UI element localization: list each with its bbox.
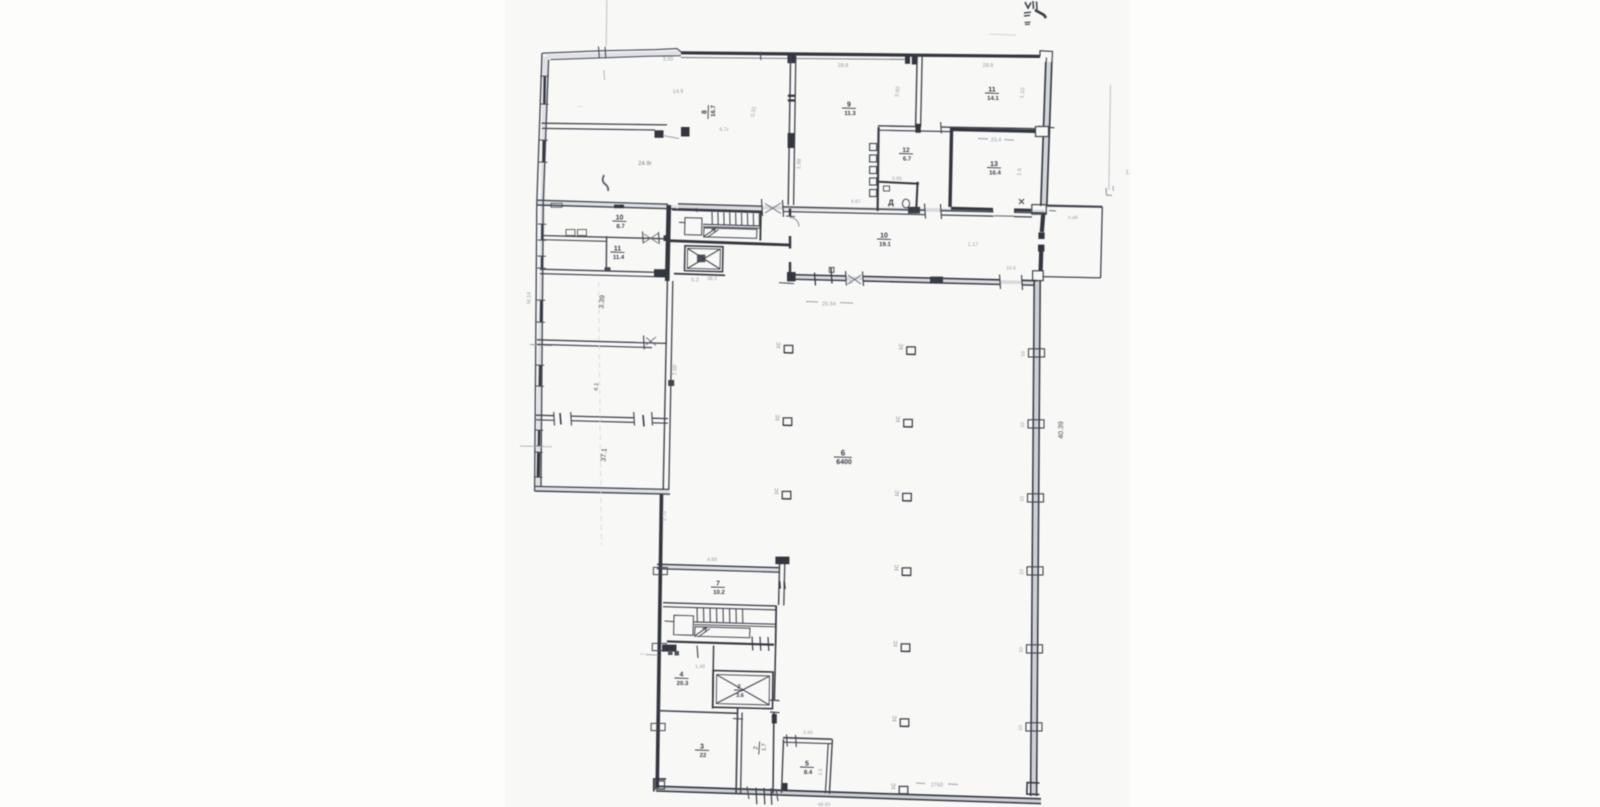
svg-text:20.3: 20.3 — [677, 680, 689, 687]
svg-text:19.1: 19.1 — [879, 241, 891, 248]
svg-text:4.1: 4.1 — [593, 382, 601, 391]
svg-text:5.2: 5.2 — [691, 278, 699, 284]
svg-text:1.7: 1.7 — [761, 743, 767, 751]
svg-text:—: — — [577, 104, 583, 110]
svg-text:Д: Д — [888, 198, 894, 207]
svg-text:1С: 1С — [776, 342, 783, 349]
svg-text:2.45: 2.45 — [803, 730, 813, 736]
svg-text:2.75: 2.75 — [662, 511, 668, 521]
svg-text:10: 10 — [1018, 725, 1024, 731]
svg-text:38.2: 38.2 — [707, 276, 717, 282]
svg-text:5: 5 — [805, 760, 809, 767]
svg-text:3.55: 3.55 — [663, 57, 674, 63]
svg-text:М.14: М.14 — [527, 292, 533, 304]
svg-text:8.4: 8.4 — [804, 769, 813, 776]
svg-text:13: 13 — [990, 161, 998, 168]
svg-text:10: 10 — [880, 232, 888, 239]
svg-text:20.4: 20.4 — [991, 138, 1002, 144]
svg-text:1С: 1С — [894, 564, 901, 571]
svg-text:11.3: 11.3 — [844, 110, 856, 117]
svg-text:1С: 1С — [895, 416, 902, 423]
svg-text:1.98: 1.98 — [796, 158, 803, 169]
svg-text:11: 11 — [614, 245, 622, 252]
svg-text:0.85: 0.85 — [892, 176, 902, 182]
svg-text:1С: 1С — [892, 715, 899, 722]
svg-text:1С: 1С — [891, 783, 898, 790]
svg-text:40.39: 40.39 — [1058, 421, 1065, 439]
svg-text:10.6: 10.6 — [1006, 266, 1016, 272]
svg-text:12: 12 — [902, 147, 910, 154]
svg-text:3: 3 — [700, 743, 704, 750]
svg-text:п.аб: п.аб — [1068, 215, 1078, 221]
svg-text:4.8г: 4.8г — [845, 280, 854, 286]
svg-text:3.39: 3.39 — [599, 295, 607, 309]
svg-text:9: 9 — [847, 101, 851, 108]
svg-text:28.8: 28.8 — [838, 63, 849, 69]
svg-text:6.7: 6.7 — [903, 156, 912, 163]
svg-text:7.00: 7.00 — [673, 365, 679, 376]
svg-text:2760: 2760 — [931, 783, 943, 789]
svg-text:1.5: 1.5 — [818, 768, 824, 775]
svg-text:11: 11 — [988, 86, 996, 93]
svg-text:1.49: 1.49 — [695, 664, 705, 670]
svg-text:4.7г: 4.7г — [719, 127, 729, 133]
svg-text:1.: 1. — [1125, 169, 1130, 176]
svg-text:6400: 6400 — [836, 459, 852, 466]
svg-text:48.90: 48.90 — [818, 802, 831, 807]
svg-text:6: 6 — [841, 448, 846, 457]
svg-text:10: 10 — [1019, 569, 1025, 575]
svg-text:4.88: 4.88 — [707, 557, 717, 563]
svg-text:1С: 1С — [898, 343, 905, 350]
svg-text:37.1: 37.1 — [601, 448, 609, 462]
svg-text:11.4: 11.4 — [613, 254, 625, 261]
svg-text:6.67: 6.67 — [851, 199, 861, 205]
svg-text:10: 10 — [1019, 647, 1025, 653]
svg-text:1С: 1С — [894, 490, 901, 497]
svg-text:14.9: 14.9 — [673, 89, 684, 95]
svg-text:1.6: 1.6 — [1017, 168, 1024, 176]
svg-text:8: 8 — [701, 110, 708, 114]
svg-text:14.1: 14.1 — [987, 95, 999, 102]
svg-text:24.9г: 24.9г — [638, 160, 653, 167]
svg-text:25.94: 25.94 — [822, 302, 836, 308]
svg-text:10: 10 — [616, 214, 624, 221]
svg-text:16.7: 16.7 — [710, 105, 717, 117]
svg-text:3.6: 3.6 — [736, 693, 744, 699]
svg-text:10.2: 10.2 — [713, 589, 725, 596]
svg-text:1С: 1С — [774, 488, 781, 495]
svg-text:10: 10 — [1021, 351, 1027, 357]
svg-text:10: 10 — [1020, 496, 1026, 502]
svg-text:1.17: 1.17 — [968, 242, 979, 248]
svg-text:28.8: 28.8 — [983, 63, 994, 69]
svg-text:1С: 1С — [893, 640, 900, 647]
svg-text:16.4: 16.4 — [989, 170, 1001, 177]
svg-text:1С: 1С — [775, 414, 782, 421]
svg-text:10: 10 — [1020, 422, 1026, 428]
svg-text:1.10: 1.10 — [1020, 87, 1027, 98]
svg-text:22: 22 — [700, 752, 707, 759]
svg-text:7: 7 — [716, 580, 720, 587]
svg-text:8.7: 8.7 — [616, 223, 625, 230]
svg-text:4: 4 — [680, 671, 684, 678]
